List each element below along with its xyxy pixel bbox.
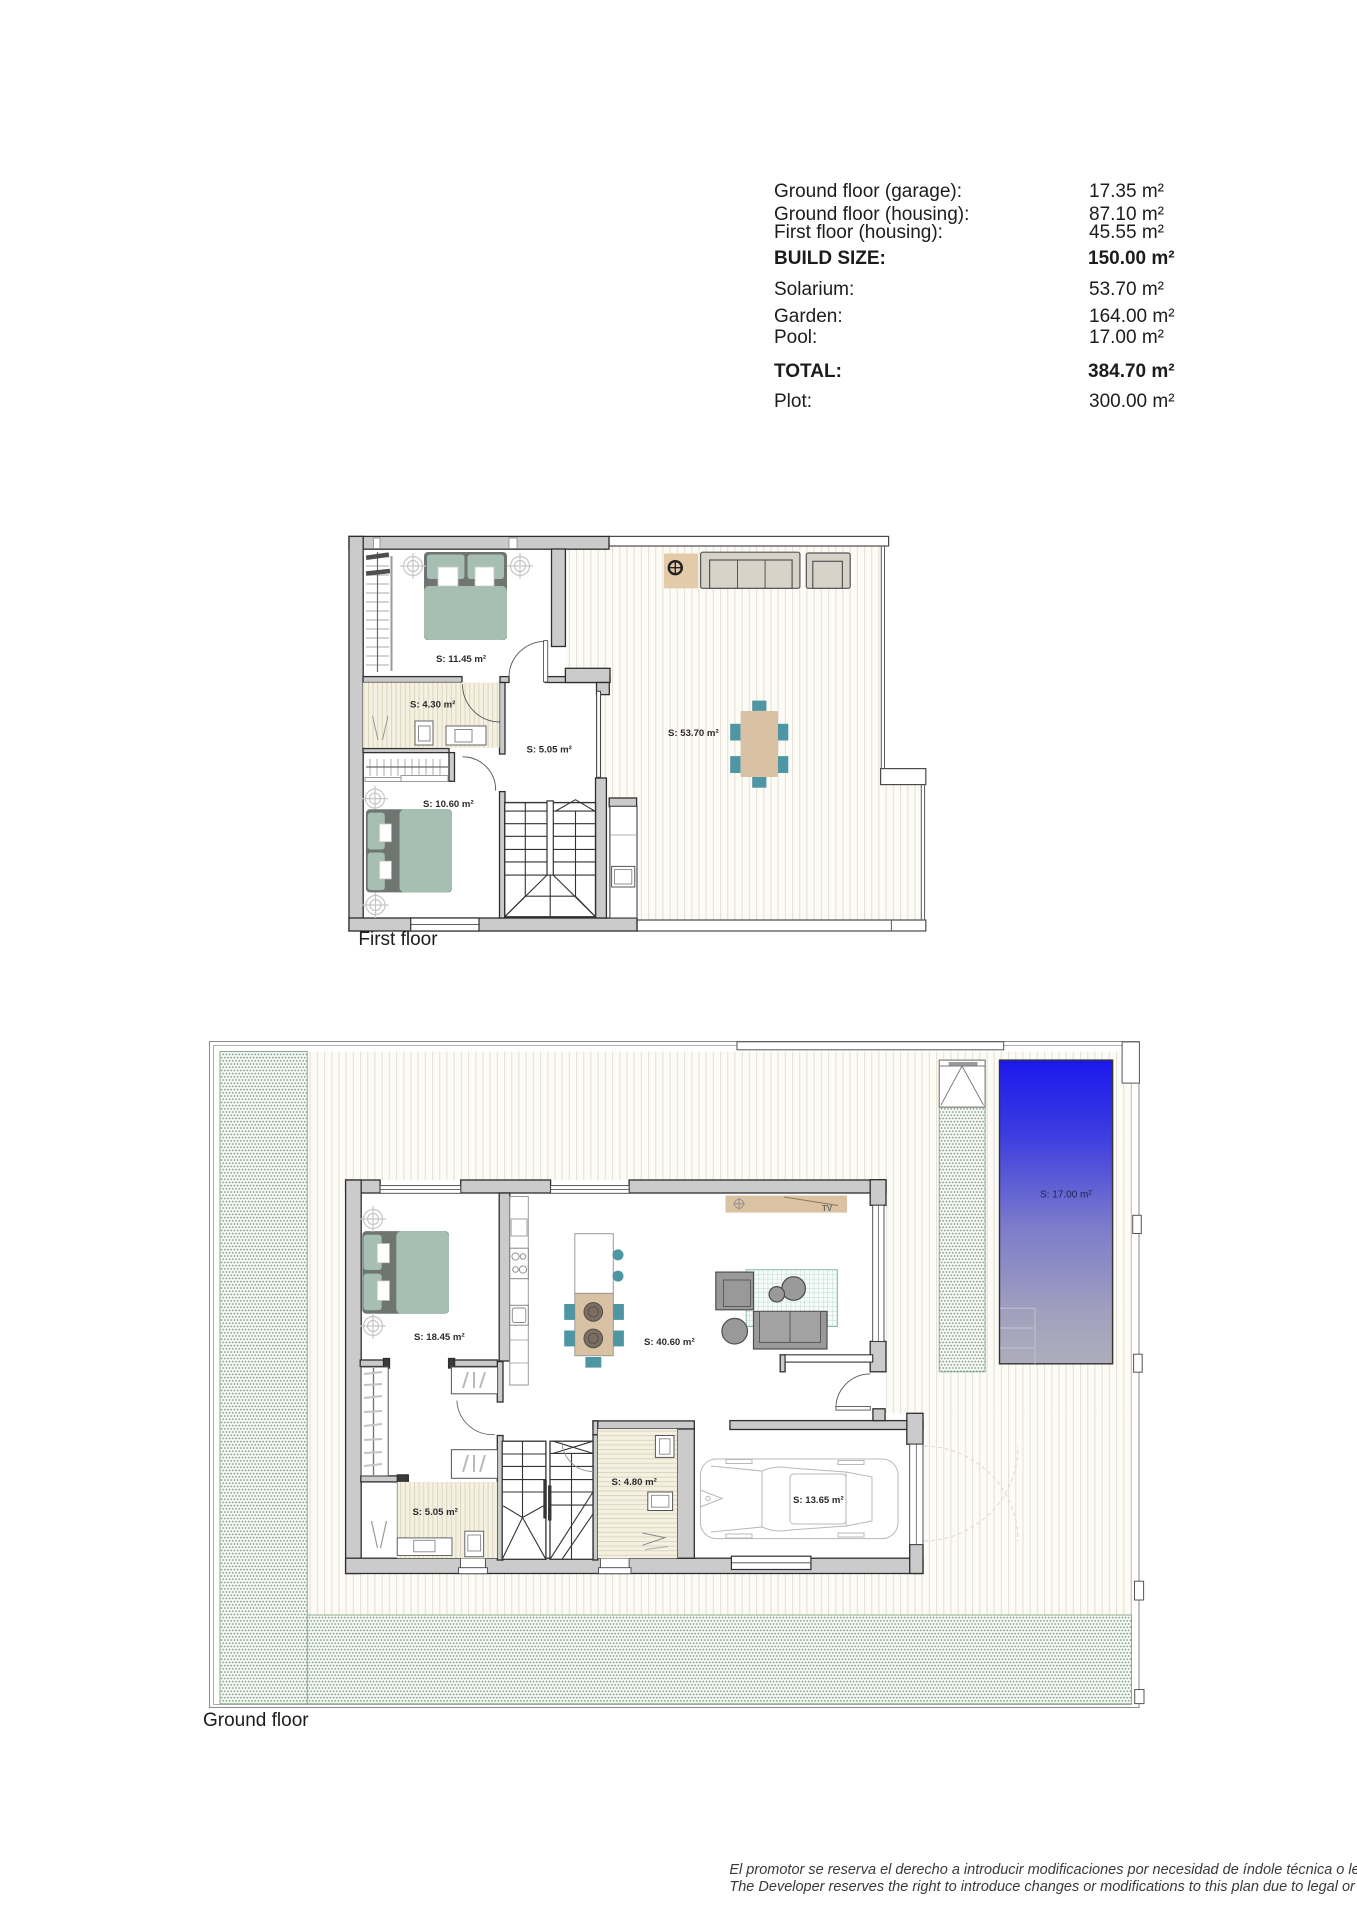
svg-text:S: 11.45 m²: S: 11.45 m² bbox=[436, 654, 486, 665]
svg-text:S: 4.30 m²: S: 4.30 m² bbox=[410, 700, 455, 711]
svg-text:S: 18.45 m²: S: 18.45 m² bbox=[414, 1332, 465, 1343]
svg-text:S: 5.05 m²: S: 5.05 m² bbox=[413, 1507, 458, 1518]
svg-text:S: 40.60 m²: S: 40.60 m² bbox=[644, 1337, 695, 1348]
svg-text:S: 10.60 m²: S: 10.60 m² bbox=[423, 799, 474, 810]
svg-text:S: 53.70 m²: S: 53.70 m² bbox=[668, 728, 719, 739]
svg-text:S: 5.05 m²: S: 5.05 m² bbox=[527, 745, 572, 756]
svg-text:S: 13.65 m²: S: 13.65 m² bbox=[793, 1495, 844, 1506]
svg-text:TV: TV bbox=[822, 1204, 833, 1213]
svg-text:S: 4.80 m²: S: 4.80 m² bbox=[612, 1477, 657, 1488]
svg-text:S: 17.00 m²: S: 17.00 m² bbox=[1040, 1190, 1092, 1201]
